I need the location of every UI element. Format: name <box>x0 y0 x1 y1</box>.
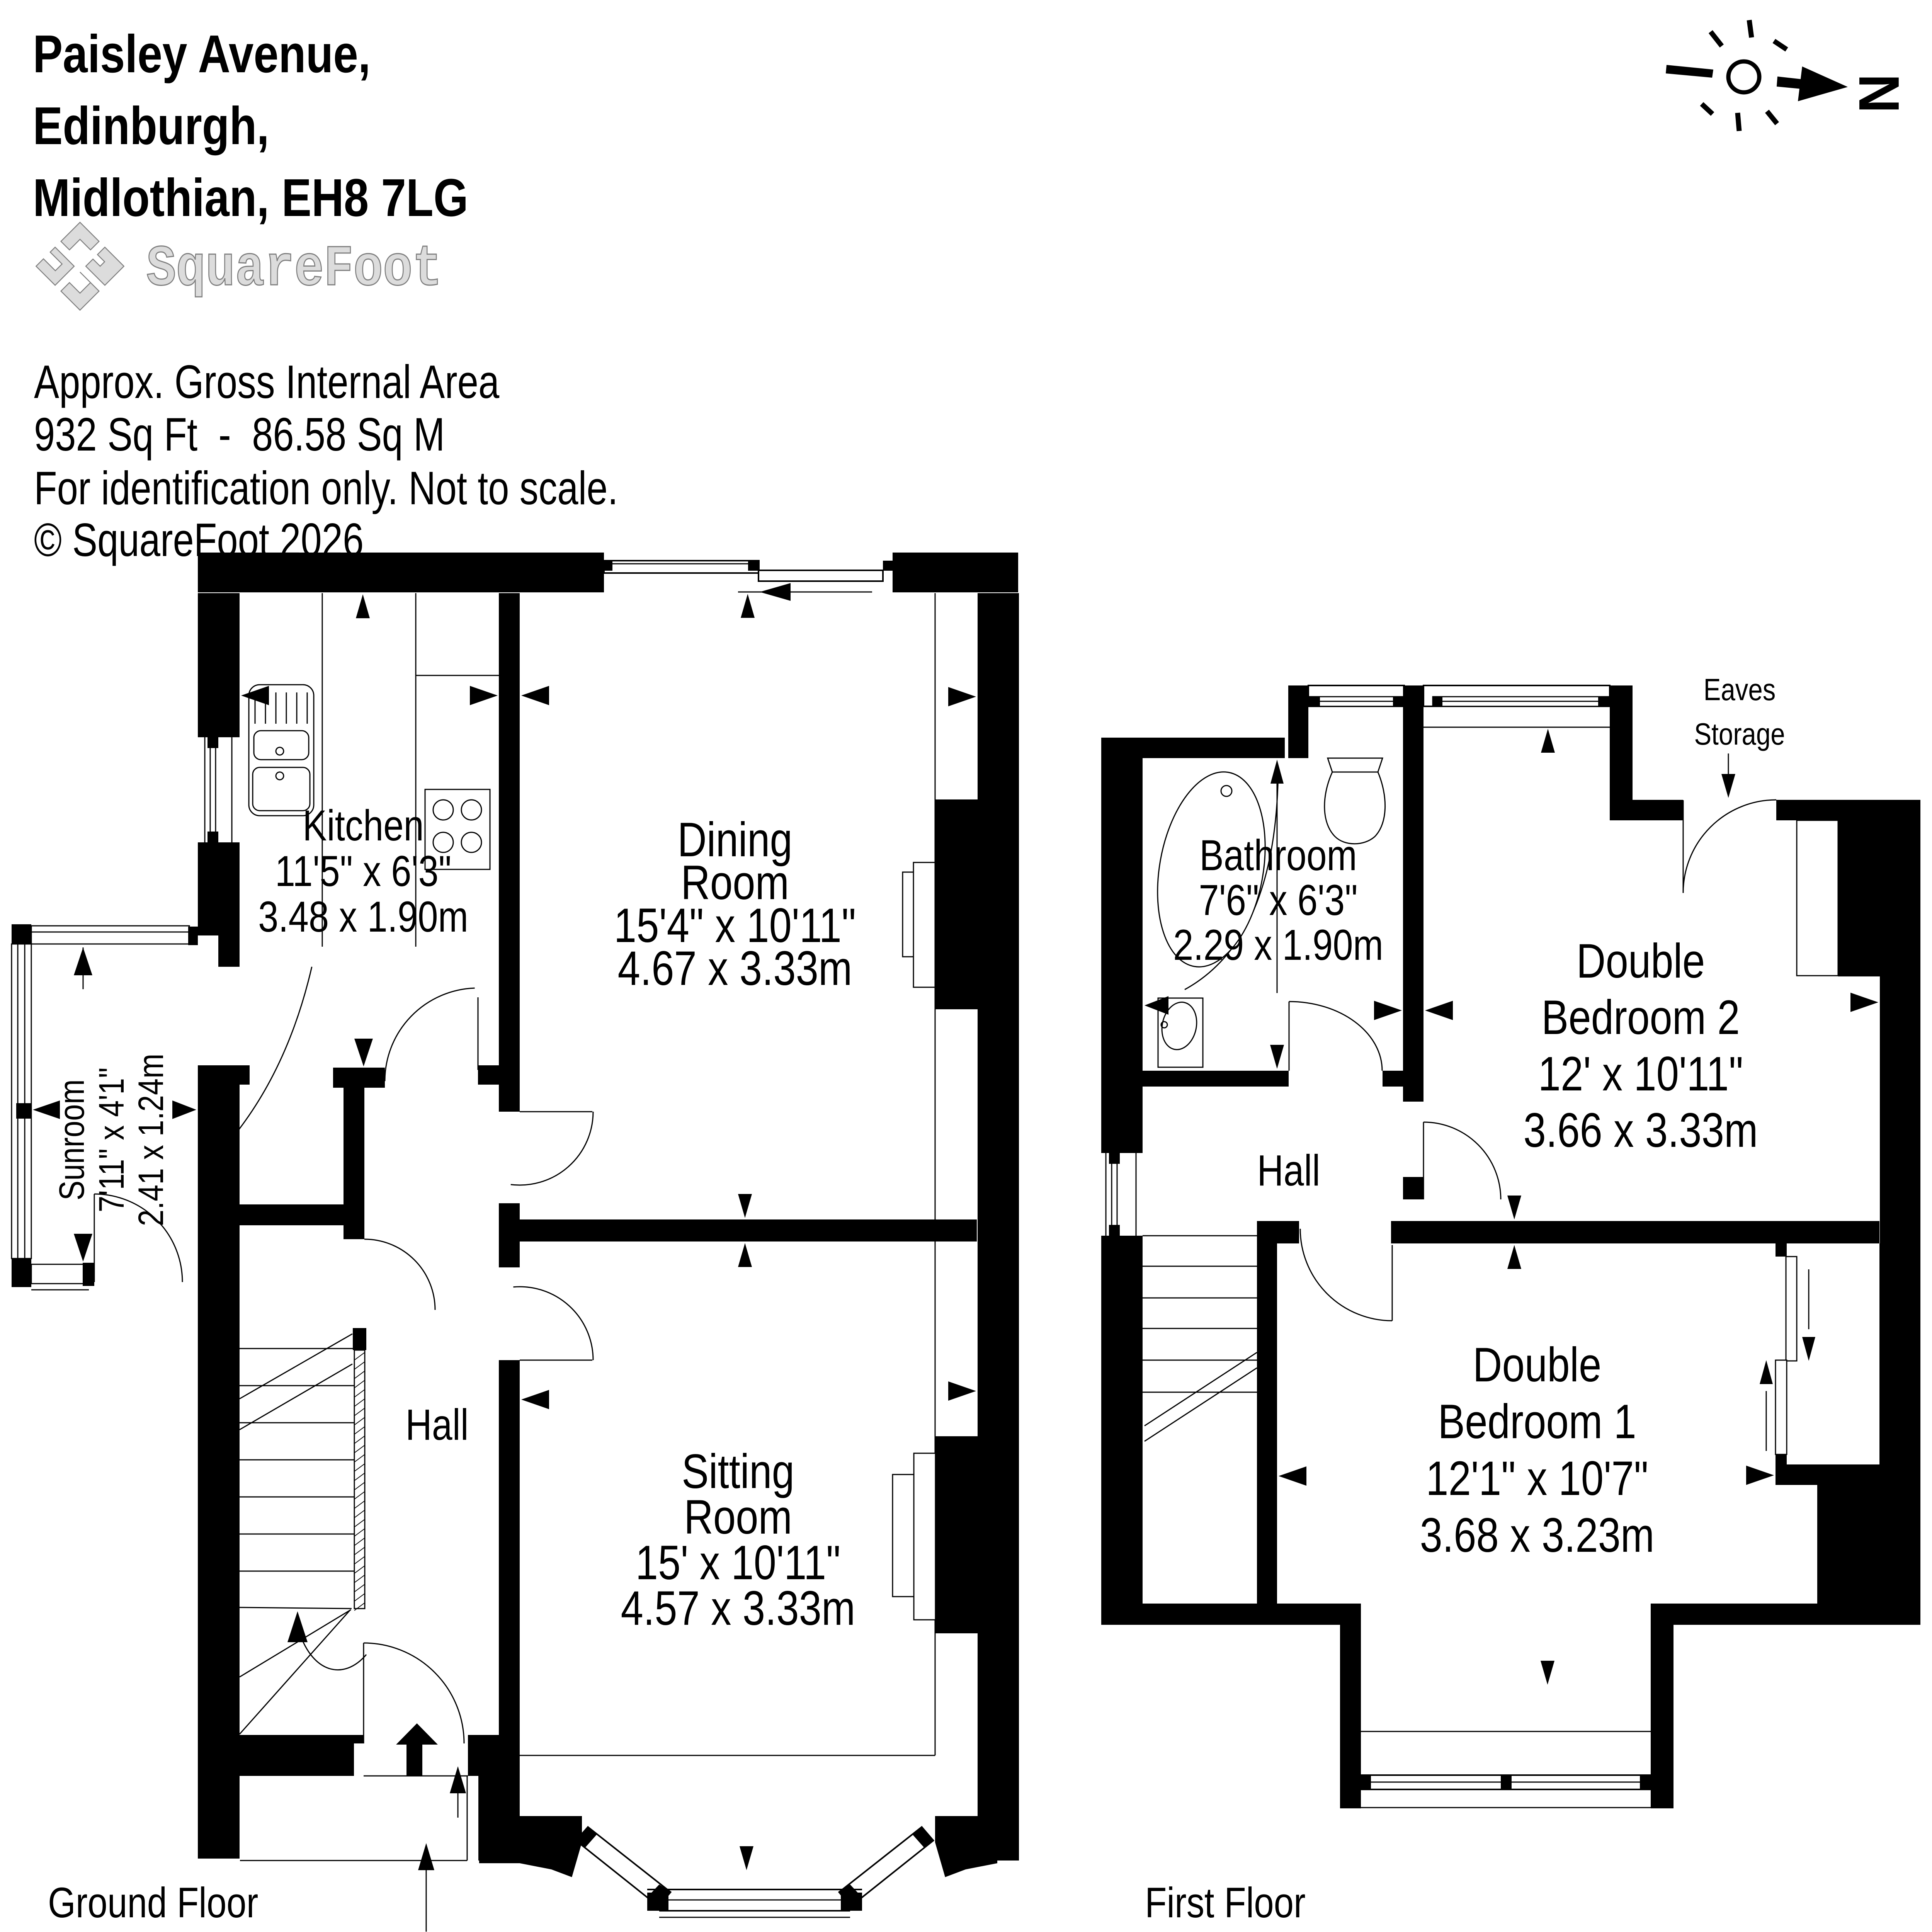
svg-text:Edinburgh,: Edinburgh, <box>33 97 269 156</box>
svg-text:3.68 x 3.23m: 3.68 x 3.23m <box>1420 1509 1655 1562</box>
svg-text:Paisley Avenue,: Paisley Avenue, <box>33 25 371 84</box>
svg-text:2.41 x 1.24m: 2.41 x 1.24m <box>131 1054 171 1226</box>
svg-text:Hall: Hall <box>405 1401 469 1449</box>
svg-text:Midlothian, EH8 7LG: Midlothian, EH8 7LG <box>33 168 468 228</box>
svg-text:N: N <box>1847 74 1911 113</box>
svg-text:Bedroom 1: Bedroom 1 <box>1438 1395 1636 1449</box>
svg-text:4.67 x 3.33m: 4.67 x 3.33m <box>618 942 852 995</box>
svg-text:Kitchen: Kitchen <box>303 801 424 850</box>
svg-text:3.66 x 3.33m: 3.66 x 3.33m <box>1524 1104 1758 1157</box>
svg-text:For identification only. Not t: For identification only. Not to scale. <box>34 462 618 515</box>
svg-text:Bathroom: Bathroom <box>1199 831 1357 879</box>
svg-text:Ground Floor: Ground Floor <box>48 1879 258 1926</box>
svg-text:4.57 x 3.33m: 4.57 x 3.33m <box>621 1582 855 1635</box>
svg-text:Approx. Gross Internal Area: Approx. Gross Internal Area <box>34 356 500 408</box>
svg-text:2.29 x 1.90m: 2.29 x 1.90m <box>1173 920 1383 969</box>
svg-text:11'5" x 6'3": 11'5" x 6'3" <box>275 847 452 895</box>
svg-text:Bedroom 2: Bedroom 2 <box>1541 991 1740 1044</box>
svg-text:7'11" x 4'1": 7'11" x 4'1" <box>92 1067 132 1212</box>
svg-text:SquareFoot: SquareFoot <box>146 236 442 302</box>
svg-text:12'1" x 10'7": 12'1" x 10'7" <box>1426 1452 1648 1505</box>
svg-text:7'6" x 6'3": 7'6" x 6'3" <box>1199 876 1357 924</box>
svg-text:Sunroom: Sunroom <box>52 1079 92 1201</box>
svg-text:Storage: Storage <box>1694 716 1785 751</box>
svg-text:Hall: Hall <box>1257 1146 1320 1195</box>
svg-text:Double: Double <box>1473 1338 1602 1392</box>
svg-text:Double: Double <box>1577 934 1705 988</box>
svg-text:Eaves: Eaves <box>1704 672 1776 707</box>
svg-text:3.48 x 1.90m: 3.48 x 1.90m <box>258 892 468 941</box>
svg-text:932 Sq Ft - 86.58 Sq M: 932 Sq Ft - 86.58 Sq M <box>34 408 445 461</box>
svg-text:First Floor: First Floor <box>1145 1879 1306 1926</box>
svg-text:12' x 10'11": 12' x 10'11" <box>1538 1047 1743 1101</box>
